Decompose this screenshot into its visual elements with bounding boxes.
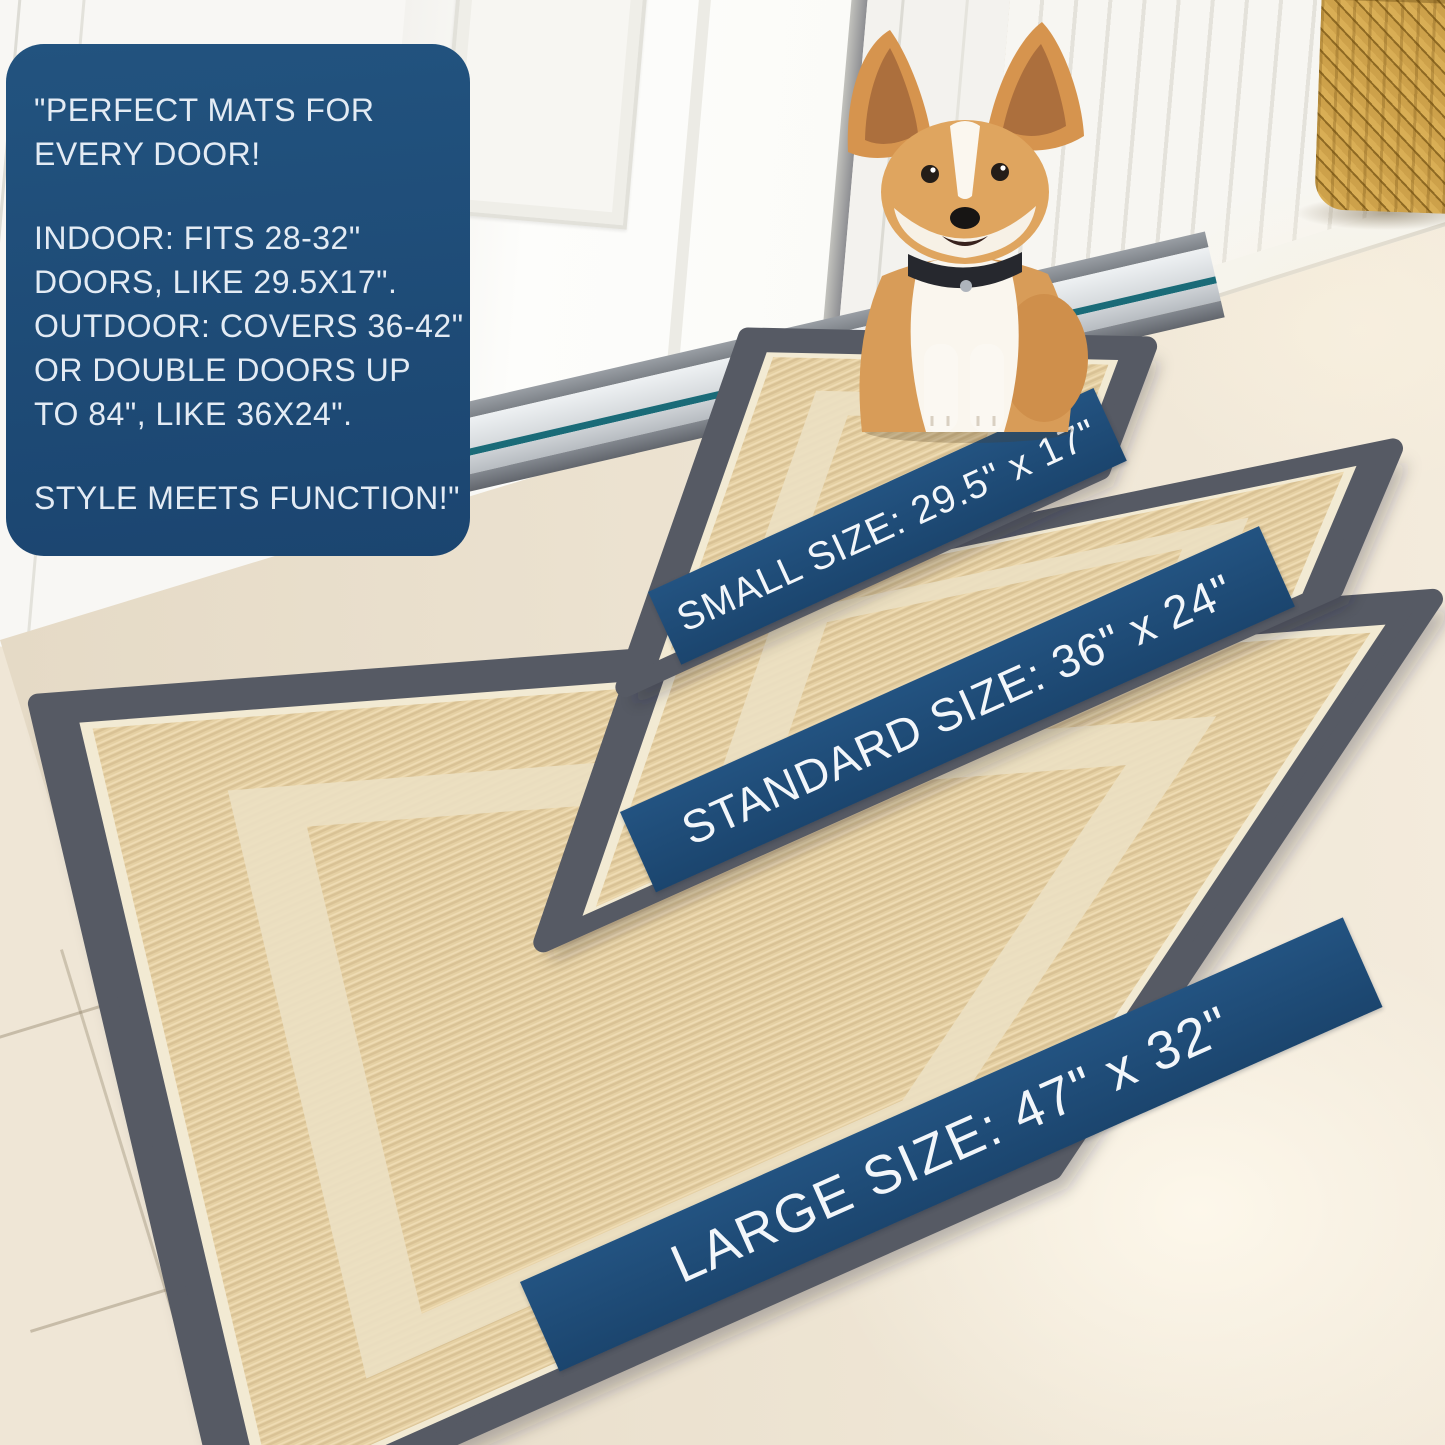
corgi-dog [790,14,1130,444]
product-photo-scene: SMALL SIZE: 29.5" x 17" STANDARD SIZE: 3… [0,0,1445,1445]
info-line: DOORS, LIKE 29.5X17". [34,260,452,304]
dog-leg-right [970,344,1004,432]
info-line: EVERY DOOR! [34,132,452,176]
info-line: OUTDOOR: COVERS 36-42" [34,304,452,348]
dog-eye-right [991,163,1009,181]
info-box: "PERFECT MATS FOR EVERY DOOR! INDOOR: FI… [6,44,470,556]
dog-eye-glint [930,167,935,172]
info-line: OR DOUBLE DOORS UP [34,348,452,392]
dog-collar-tag [960,280,972,292]
info-line: "PERFECT MATS FOR [34,88,452,132]
info-line: STYLE MEETS FUNCTION!" [34,476,452,520]
dog-nose [950,207,980,229]
dog-eye-left [921,165,939,183]
info-line-blank [34,176,452,216]
info-line-blank [34,436,452,476]
info-line: INDOOR: FITS 28-32" [34,216,452,260]
info-line: TO 84", LIKE 36X24". [34,392,452,436]
dog-leg-left [924,344,958,432]
dog-eye-glint [1000,165,1005,170]
